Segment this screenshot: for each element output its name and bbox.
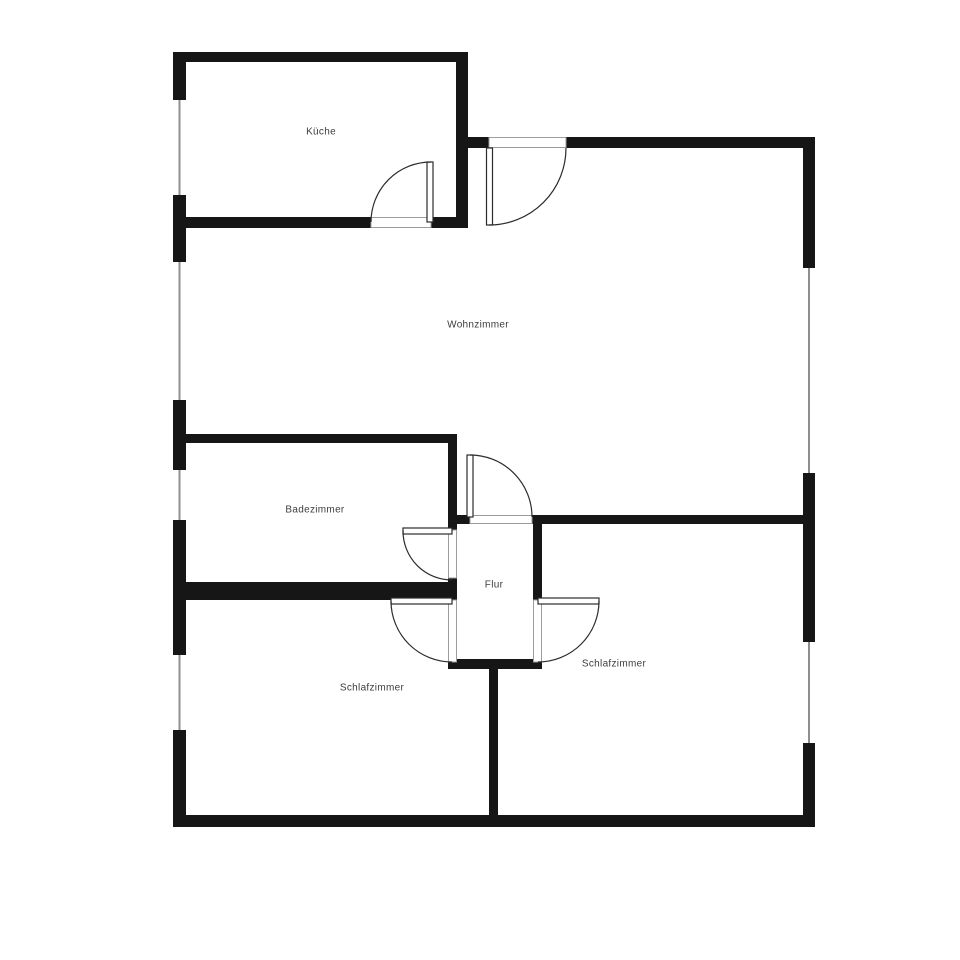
floorplan-drawing bbox=[0, 0, 960, 960]
wall-hallway-top-and-bedroom-divider bbox=[532, 515, 815, 524]
room-label-badezimmer: Badezimmer bbox=[285, 505, 344, 516]
door-opening-kitchen bbox=[371, 218, 431, 228]
room-label-wohnzimmer: Wohnzimmer bbox=[447, 320, 509, 331]
wall-kitchen-top bbox=[173, 52, 468, 62]
door-leaf bbox=[467, 455, 473, 517]
wall-right-segment-3 bbox=[803, 743, 815, 827]
door-swing-arc bbox=[371, 162, 431, 222]
wall-right-segment-2 bbox=[803, 473, 815, 642]
door-bedroom-left bbox=[391, 598, 452, 662]
floorplan: Küche Wohnzimmer Badezimmer Flur Schlafz… bbox=[0, 0, 960, 960]
wall-livingroom-top-left bbox=[456, 137, 489, 148]
door-opening-entrance bbox=[489, 138, 566, 148]
room-label-kueche: Küche bbox=[306, 127, 336, 138]
door-opening-bathroom bbox=[449, 530, 457, 578]
wall-bathroom-bottom bbox=[173, 582, 457, 600]
wall-livingroom-top-right bbox=[566, 137, 815, 148]
windows bbox=[180, 100, 810, 743]
door-kitchen bbox=[371, 162, 433, 222]
door-opening-bedroom-left bbox=[449, 600, 457, 662]
door-entrance bbox=[487, 148, 567, 225]
door-leaf bbox=[487, 148, 493, 225]
room-label-schlafzimmer-rechts: Schlafzimmer bbox=[582, 659, 646, 670]
wall-left-segment-2 bbox=[173, 195, 186, 262]
door-swing-arc bbox=[489, 148, 566, 225]
door-leaf bbox=[538, 598, 599, 604]
wall-kitchen-bottom-left bbox=[173, 217, 371, 228]
door-swing-arc bbox=[470, 455, 532, 517]
walls bbox=[173, 52, 815, 827]
door-hallway bbox=[467, 455, 532, 517]
door-leaf bbox=[391, 598, 452, 604]
door-swing-arc bbox=[538, 601, 599, 662]
wall-hallway-right-upper bbox=[533, 524, 542, 600]
door-bathroom bbox=[403, 528, 452, 580]
room-label-schlafzimmer-links: Schlafzimmer bbox=[340, 683, 404, 694]
wall-kitchen-bottom-right bbox=[431, 217, 468, 228]
room-label-flur: Flur bbox=[485, 580, 503, 591]
wall-left-segment-5 bbox=[173, 730, 186, 827]
door-leaf bbox=[427, 162, 433, 222]
wall-bathroom-top bbox=[173, 434, 457, 443]
wall-right-segment-1 bbox=[803, 137, 815, 268]
door-swing-arc bbox=[391, 601, 452, 662]
door-swing-arc bbox=[403, 531, 452, 580]
door-opening-bedroom-right bbox=[534, 600, 542, 662]
wall-bedroom-divider bbox=[489, 659, 498, 827]
door-bedroom-right bbox=[538, 598, 599, 662]
door-leaf bbox=[403, 528, 452, 534]
door-opening-hallway-top bbox=[470, 516, 532, 524]
